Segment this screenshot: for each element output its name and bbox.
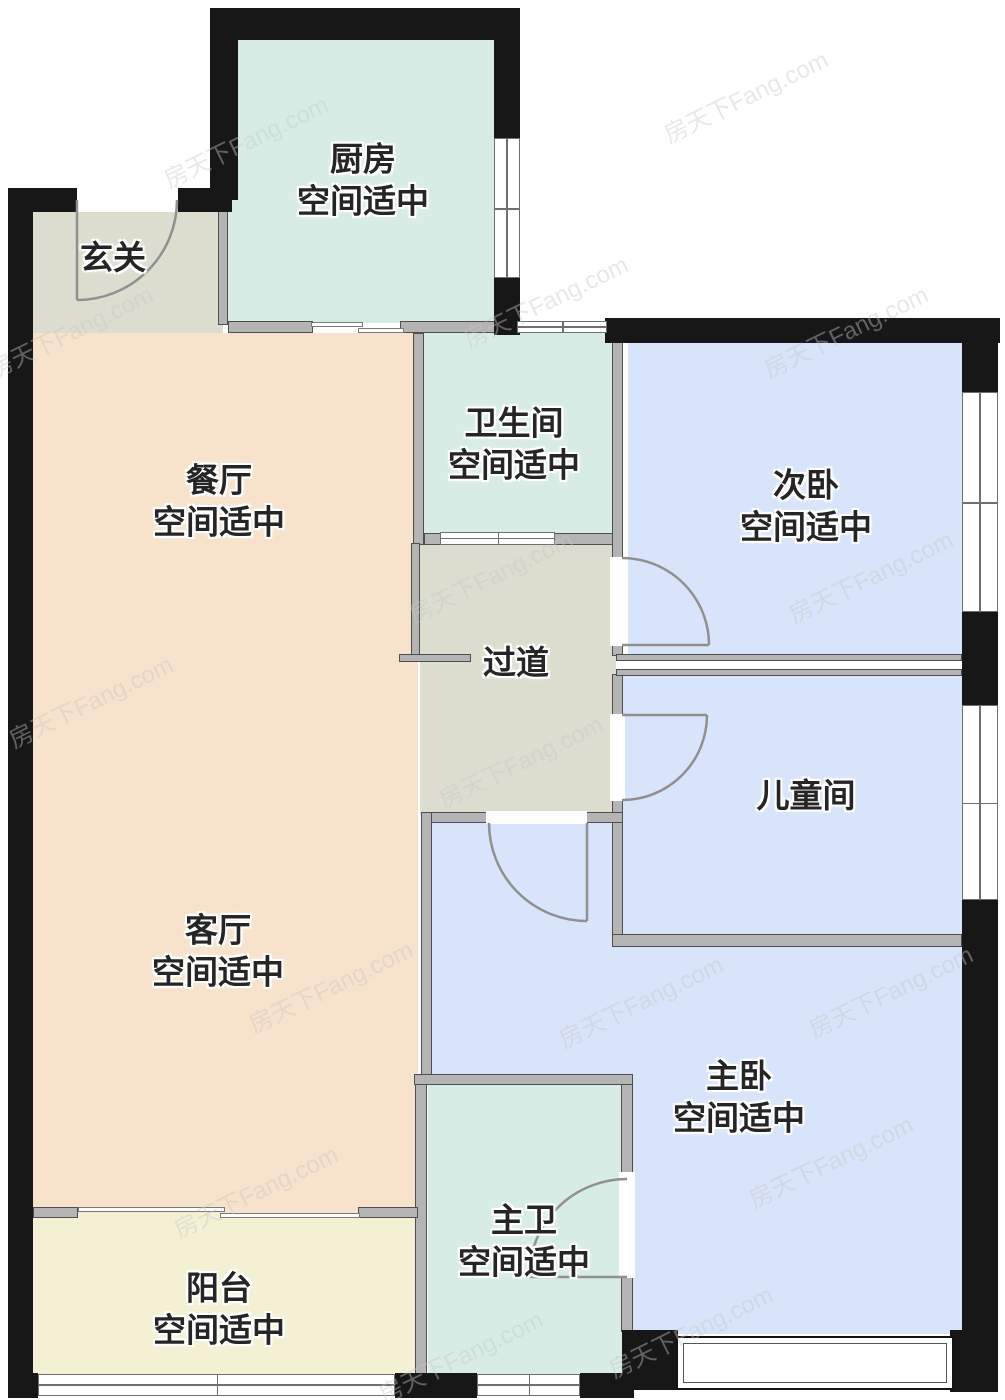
kids-door-arc <box>622 715 707 800</box>
room-label-master: 主卧空间适中 <box>673 1055 805 1138</box>
room-subtitle-kitchen: 空间适中 <box>297 180 429 222</box>
room-name-dining: 餐厅 <box>186 461 252 498</box>
room-label-dining: 餐厅空间适中 <box>153 459 285 542</box>
room-subtitle-living: 空间适中 <box>152 951 284 993</box>
room-name-kitchen: 厨房 <box>330 140 396 177</box>
door-swings <box>0 0 1005 1400</box>
room-name-corridor: 过道 <box>483 644 549 681</box>
room-label-kids: 儿童间 <box>757 775 856 817</box>
room-name-living: 客厅 <box>185 911 251 948</box>
room-name-bedroom2: 次卧 <box>773 466 839 503</box>
room-subtitle-balcony: 空间适中 <box>153 1309 285 1351</box>
room-label-living: 客厅空间适中 <box>152 909 284 992</box>
room-label-bathroom: 卫生间空间适中 <box>448 402 580 485</box>
floorplan-canvas: 厨房空间适中玄关餐厅空间适中卫生间空间适中次卧空间适中过道儿童间客厅空间适中主卧… <box>0 0 1005 1400</box>
room-label-corridor: 过道 <box>483 642 549 684</box>
room-name-balcony: 阳台 <box>186 1269 252 1306</box>
room-label-bedroom2: 次卧空间适中 <box>740 464 872 547</box>
room-subtitle-bathroom: 空间适中 <box>448 444 580 486</box>
room-name-bathroom: 卫生间 <box>465 404 564 441</box>
room-label-balcony: 阳台空间适中 <box>153 1267 285 1350</box>
room-name-entry: 玄关 <box>80 239 146 276</box>
room-subtitle-master: 空间适中 <box>673 1097 805 1139</box>
room-name-kids: 儿童间 <box>757 777 856 814</box>
room-label-entry: 玄关 <box>80 237 146 279</box>
room-subtitle-masterbath: 空间适中 <box>458 1241 590 1283</box>
room-name-master: 主卧 <box>706 1057 772 1094</box>
bedroom2-door-arc <box>622 558 709 645</box>
master-door-arc <box>489 823 587 921</box>
room-subtitle-dining: 空间适中 <box>153 501 285 543</box>
room-subtitle-bedroom2: 空间适中 <box>740 506 872 548</box>
room-label-kitchen: 厨房空间适中 <box>297 138 429 221</box>
room-label-masterbath: 主卫空间适中 <box>458 1199 590 1282</box>
room-name-masterbath: 主卫 <box>491 1201 557 1238</box>
